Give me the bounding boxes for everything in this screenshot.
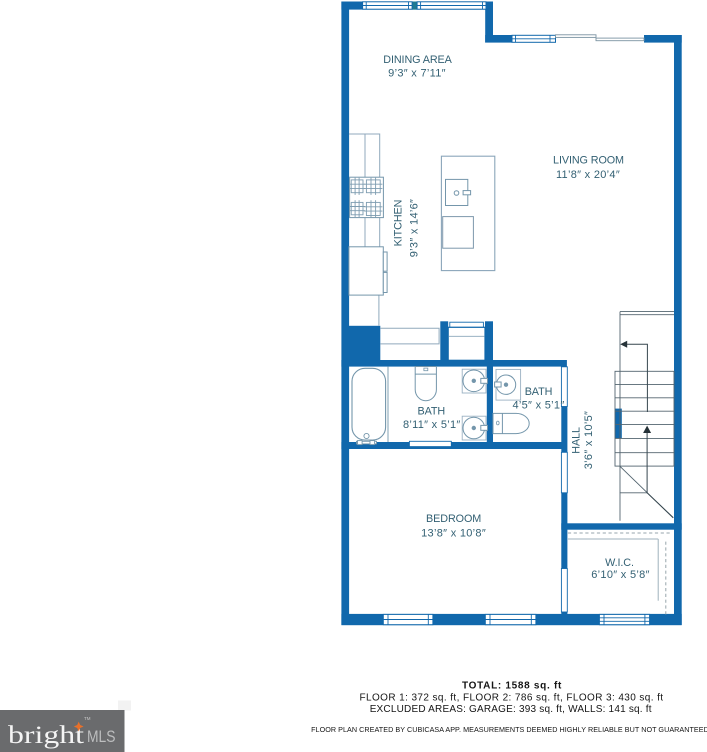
svg-text:BATH: BATH bbox=[418, 406, 446, 418]
svg-text:6’10″ x 5’8″: 6’10″ x 5’8″ bbox=[591, 569, 649, 581]
svg-text:DINING AREA: DINING AREA bbox=[383, 54, 452, 66]
svg-text:FLOOR PLAN CREATED BY CUBICASA: FLOOR PLAN CREATED BY CUBICASA APP. MEAS… bbox=[311, 725, 707, 734]
svg-text:BATH: BATH bbox=[525, 386, 553, 398]
svg-text:TM: TM bbox=[84, 716, 91, 721]
svg-text:FLOOR 1: 372 sq. ft, FLOOR 2:: FLOOR 1: 372 sq. ft, FLOOR 2: 786 sq. ft… bbox=[360, 692, 664, 703]
svg-text:9’3″ x 14’6″: 9’3″ x 14’6″ bbox=[408, 199, 420, 257]
svg-text:3’6″ x 10’5″: 3’6″ x 10’5″ bbox=[583, 411, 595, 469]
svg-text:KITCHEN: KITCHEN bbox=[393, 200, 405, 247]
svg-text:W.I.C.: W.I.C. bbox=[605, 557, 634, 569]
svg-text:bright: bright bbox=[8, 720, 84, 749]
svg-text:HALL: HALL bbox=[570, 427, 582, 454]
svg-text:4’5″ x 5’1″: 4’5″ x 5’1″ bbox=[512, 400, 564, 412]
svg-text:9’3″ x 7’11″: 9’3″ x 7’11″ bbox=[388, 68, 446, 80]
svg-text:LIVING ROOM: LIVING ROOM bbox=[553, 154, 624, 166]
svg-text:EXCLUDED AREAS: GARAGE: 393 sq: EXCLUDED AREAS: GARAGE: 393 sq. ft, WALL… bbox=[370, 704, 652, 715]
svg-text:11’8″ x 20’4″: 11’8″ x 20’4″ bbox=[556, 169, 620, 181]
svg-text:13’8″ x 10’8″: 13’8″ x 10’8″ bbox=[421, 528, 486, 540]
svg-text:BEDROOM: BEDROOM bbox=[426, 513, 481, 525]
svg-text:8’11″ x 5’1″: 8’11″ x 5’1″ bbox=[403, 419, 461, 431]
svg-text:MLS: MLS bbox=[87, 727, 116, 746]
svg-text:TOTAL: 1588 sq. ft: TOTAL: 1588 sq. ft bbox=[462, 681, 562, 692]
